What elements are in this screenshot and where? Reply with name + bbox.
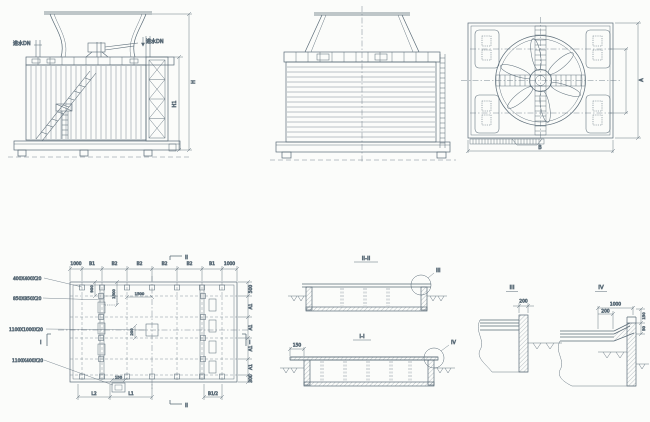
dim-200: 200 [129,328,134,336]
section-ribs [341,288,389,306]
mark-II-top: II [185,255,188,261]
drawing-sheet: 进水DN 进水DN H H1 [0,0,650,422]
detail-IV-dim-200: 200 [601,309,610,315]
bottom-dim-chain [76,378,224,400]
anchor-box [112,383,125,392]
inlet-pipes [34,36,150,57]
right-dim-0: 500 [248,285,254,294]
detail-IV-title: IV [598,285,604,291]
inlet-label-right: 进水DN [146,38,164,45]
dim-H1: H1 [172,101,178,108]
ground-symbol [528,343,562,349]
detail-ref-III: III [436,268,440,274]
fill-sheets [31,66,141,139]
mark-I-right: I [249,340,250,346]
wall-dim [513,303,534,313]
plan-view: B A [461,17,645,153]
louver-lines [287,67,435,137]
basin [8,141,190,157]
detail-IV-dim-1000: 1000 [610,302,621,308]
leader-850: 850X850X20 [13,296,42,302]
detail-III-view: III 200 [478,285,562,372]
break-line [558,341,636,386]
top-dim-3: B2 [137,261,143,267]
right-dim-3: A1 [248,345,254,351]
dim-1500v: 1500 [111,289,116,299]
right-dim-5: 300 [248,374,254,383]
leader-1100x400: 1100X400X20 [12,358,43,364]
top-dim-0: 1000 [70,261,81,267]
detail-III-title: III [510,285,515,291]
dim-H: H [191,80,197,84]
detail-IV-dim-50: 50 [641,326,646,331]
deck [26,57,174,65]
right-dim-4: A1 [248,364,254,370]
bottom-dim-half: B1/2 [208,391,218,397]
right-dim-2: A1 [248,324,254,330]
leader-400: 400X400X20 [13,276,42,282]
top-dim-chain [68,266,239,281]
front-elevation-view [270,6,456,162]
top-dim-7: 1000 [224,261,235,267]
section-I-I-view: I-I 150 IV [280,334,456,386]
detail-ref-IV: IV [451,340,456,346]
detail-IV-dim-150: 150 [641,312,646,320]
top-dim-5: B2 [187,261,193,267]
ladder-front [440,54,445,148]
fan-stack [44,12,152,57]
detail-IV-view: IV 1000 200 150 50 [558,285,649,386]
side-elevation-view: 进水DN 进水DN H H1 [8,12,197,157]
leader-1100x1000: 1100X1000X20 [9,327,43,333]
dim-900: 900 [89,285,94,293]
ground-symbol [598,352,649,369]
section-II-II-view: II-II III [288,256,447,311]
bottom-dim-L1: L1 [128,391,133,397]
louver-column [146,57,168,141]
cut-centerlines [58,276,250,390]
mark-II-bottom: II [185,403,188,409]
anchor-dim: 150 [115,375,123,380]
section-I-title: I-I [359,334,365,340]
cooling-tower-drawing: 进水DN 进水DN H H1 [0,0,650,422]
foundation-plan-view: 1000 B1 B2 B2 B2 B2 B1 1000 500 A1 A1 A1… [9,255,254,409]
plan-dim-A: A [639,78,645,82]
detail-III-dim-200: 200 [519,299,528,305]
height-dimensions [152,12,192,152]
section-II-title: II-II [362,256,371,262]
plan-dim-B: B [538,145,542,151]
top-dim-2: B2 [112,261,118,267]
access-strip [470,139,544,145]
mark-I-left: I [40,340,41,346]
right-dim-1: A1 [248,303,254,309]
dim-1500h: 1500 [135,291,145,296]
bottom-dim-L2: L2 [91,391,96,397]
louver-body-front [286,62,436,142]
inlet-label-left: 进水DN [13,40,31,47]
section-ribs [321,361,411,381]
top-dim-6: B1 [209,261,215,267]
top-dim-1: B1 [89,261,95,267]
top-dim-4: B2 [162,261,168,267]
dim-150: 150 [293,343,302,349]
basin-front [270,142,456,160]
